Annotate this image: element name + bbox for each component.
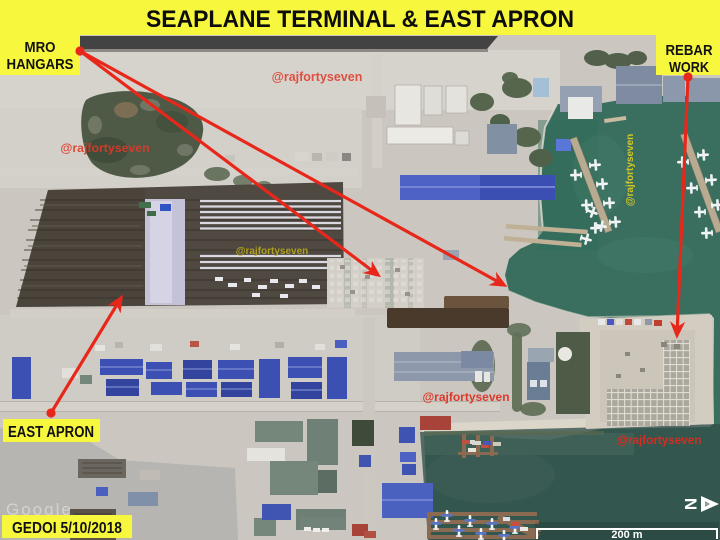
svg-text:@rajfortyseven: @rajfortyseven xyxy=(625,134,636,207)
svg-text:@rajfortyseven: @rajfortyseven xyxy=(236,246,309,257)
svg-text:HANGARS: HANGARS xyxy=(7,57,74,73)
svg-text:GEDOI 5/10/2018: GEDOI 5/10/2018 xyxy=(12,520,122,537)
svg-text:N: N xyxy=(681,498,700,510)
svg-text:MRO: MRO xyxy=(25,40,56,56)
svg-text:@rajfortyseven: @rajfortyseven xyxy=(60,141,149,155)
svg-text:SEAPLANE TERMINAL & EAST APRON: SEAPLANE TERMINAL & EAST APRON xyxy=(146,6,574,33)
svg-text:@rajfortyseven: @rajfortyseven xyxy=(272,70,363,84)
svg-text:@rajfortyseven: @rajfortyseven xyxy=(617,434,702,447)
svg-text:@rajfortyseven: @rajfortyseven xyxy=(422,390,509,404)
svg-text:REBAR: REBAR xyxy=(666,42,713,59)
svg-text:EAST APRON: EAST APRON xyxy=(8,424,94,441)
svg-text:200 m: 200 m xyxy=(611,529,642,540)
